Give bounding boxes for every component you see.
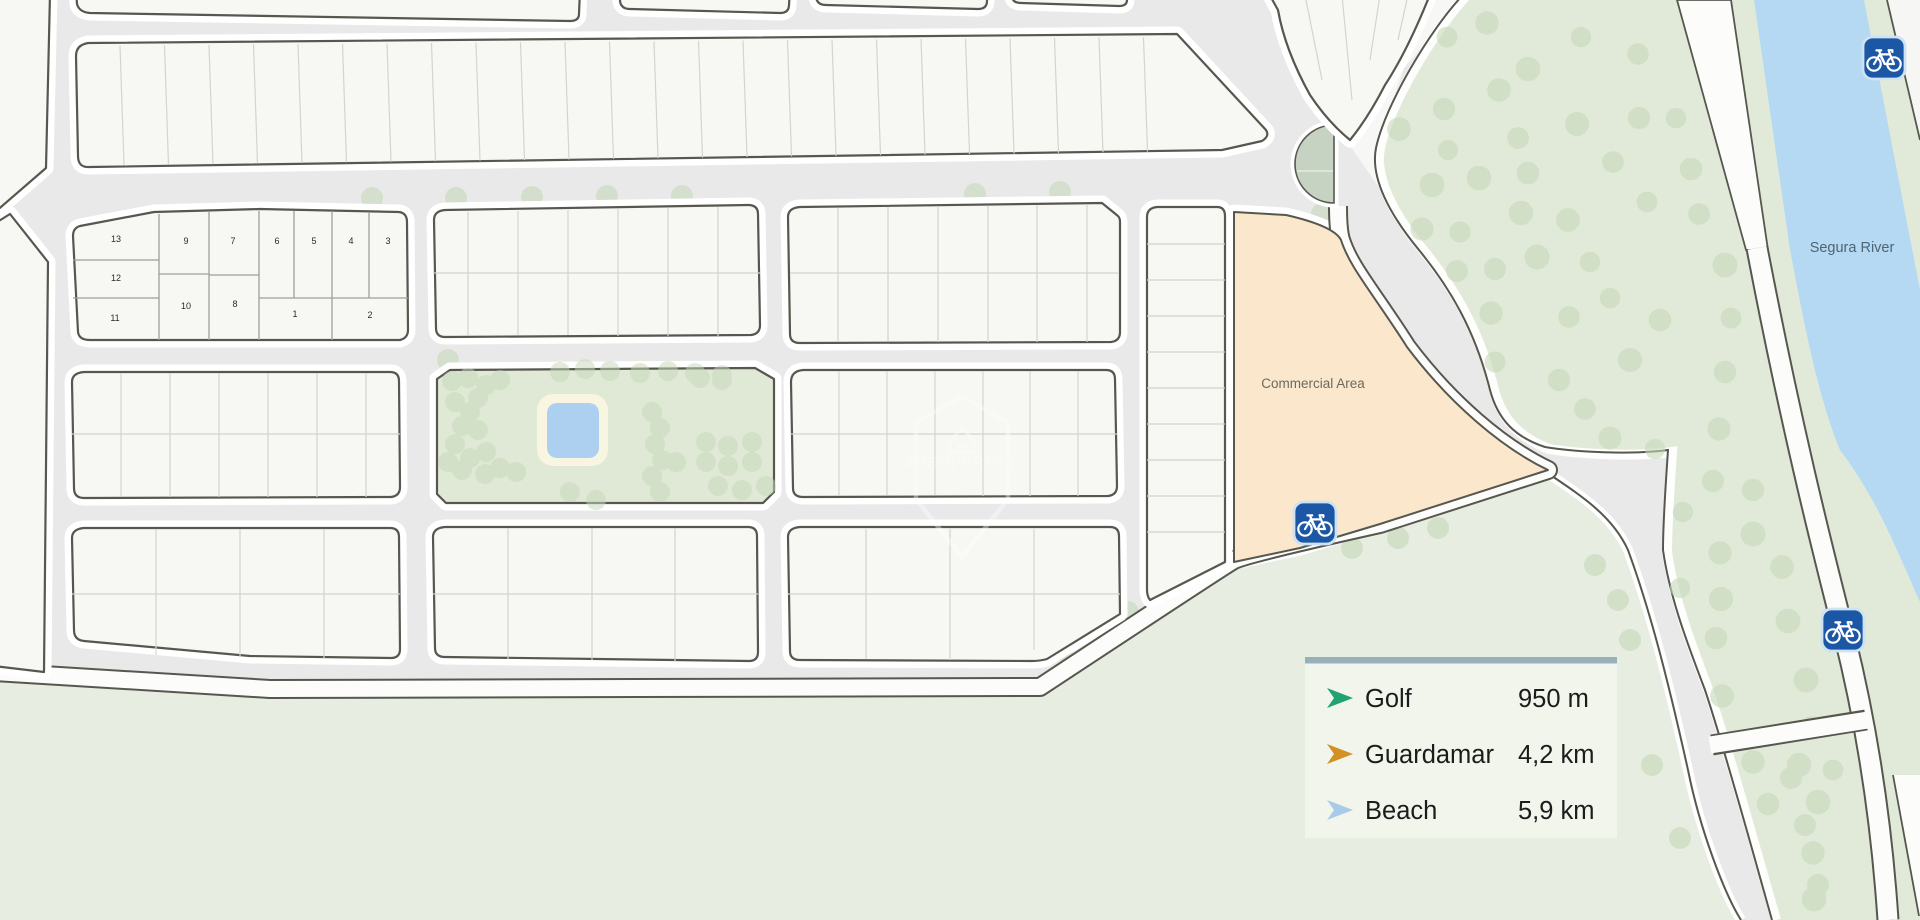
svg-text:4,2 km: 4,2 km bbox=[1518, 741, 1595, 769]
svg-text:3: 3 bbox=[385, 236, 390, 246]
svg-text:950 m: 950 m bbox=[1518, 685, 1589, 713]
svg-text:6: 6 bbox=[274, 236, 279, 246]
svg-text:12: 12 bbox=[111, 273, 121, 283]
svg-text:APROPERTIES: APROPERTIES bbox=[905, 455, 1020, 472]
svg-text:Golf: Golf bbox=[1365, 685, 1413, 713]
svg-text:11: 11 bbox=[110, 313, 119, 323]
svg-text:7: 7 bbox=[230, 236, 235, 246]
svg-text:Commercial Area: Commercial Area bbox=[1261, 376, 1365, 391]
svg-text:4: 4 bbox=[348, 236, 353, 246]
svg-text:9: 9 bbox=[183, 236, 188, 246]
svg-text:2: 2 bbox=[367, 310, 372, 320]
svg-text:Segura River: Segura River bbox=[1810, 240, 1895, 256]
svg-text:5,9 km: 5,9 km bbox=[1518, 797, 1595, 825]
svg-text:5: 5 bbox=[311, 236, 316, 246]
svg-text:10: 10 bbox=[181, 301, 191, 311]
svg-text:13: 13 bbox=[111, 234, 121, 244]
svg-text:Beach: Beach bbox=[1365, 797, 1437, 825]
svg-text:8: 8 bbox=[232, 299, 237, 309]
svg-text:1: 1 bbox=[292, 309, 297, 319]
svg-text:Guardamar: Guardamar bbox=[1365, 741, 1494, 769]
